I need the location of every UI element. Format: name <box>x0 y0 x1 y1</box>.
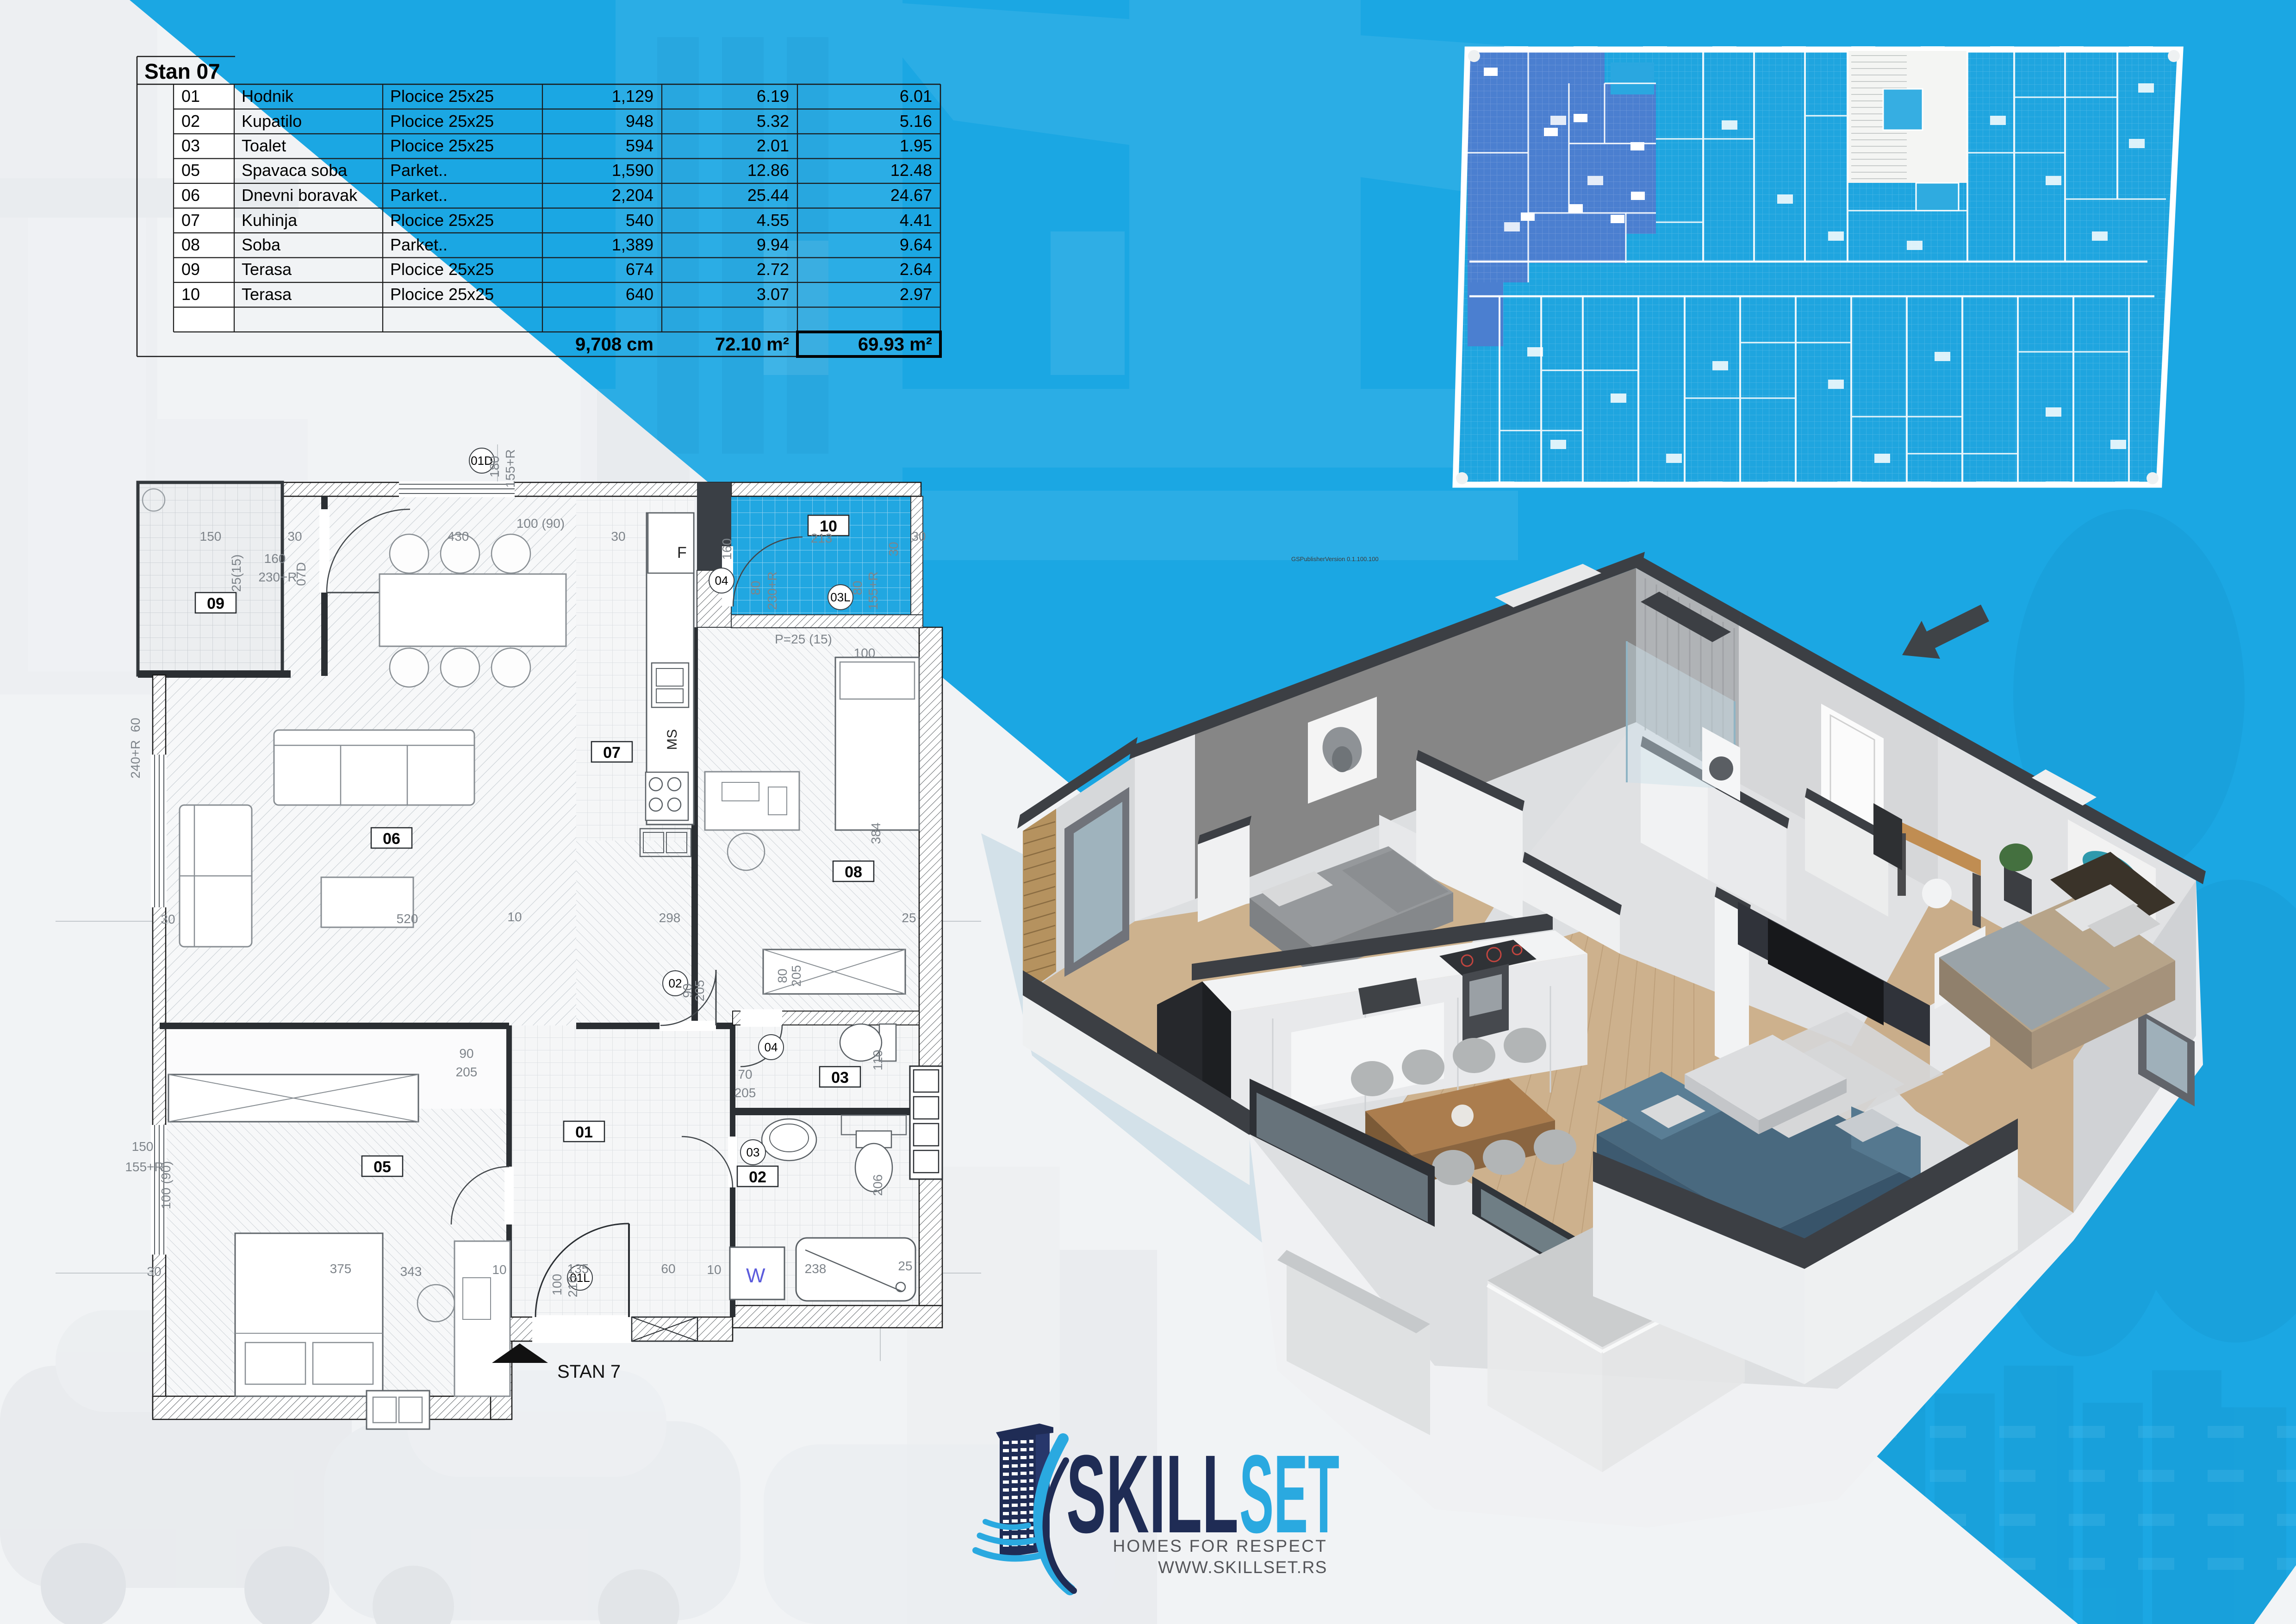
svg-text:Parket..: Parket.. <box>390 161 448 180</box>
svg-text:07: 07 <box>181 211 200 230</box>
svg-text:60: 60 <box>128 718 143 732</box>
svg-text:674: 674 <box>626 260 653 279</box>
svg-text:230+R: 230+R <box>258 570 297 584</box>
svg-text:298: 298 <box>659 911 681 925</box>
svg-text:03: 03 <box>181 136 200 155</box>
svg-text:25(15): 25(15) <box>229 555 243 592</box>
svg-text:160: 160 <box>720 538 734 560</box>
svg-text:Dnevni boravak: Dnevni boravak <box>242 186 358 205</box>
svg-text:100: 100 <box>854 646 876 660</box>
svg-text:Terasa: Terasa <box>242 285 292 304</box>
svg-text:69.93 m²: 69.93 m² <box>858 334 932 355</box>
svg-text:04: 04 <box>765 1040 778 1054</box>
svg-text:5.16: 5.16 <box>900 112 932 131</box>
svg-text:10: 10 <box>507 910 522 924</box>
svg-text:Stan 07: Stan 07 <box>144 59 220 83</box>
svg-text:100: 100 <box>550 1274 564 1296</box>
svg-text:640: 640 <box>626 285 653 304</box>
svg-text:01: 01 <box>575 1124 593 1141</box>
svg-text:P=25 (15): P=25 (15) <box>775 632 832 646</box>
svg-text:04: 04 <box>715 574 728 587</box>
svg-text:80: 80 <box>850 581 865 595</box>
svg-text:80: 80 <box>775 968 790 983</box>
svg-text:430: 430 <box>448 529 469 543</box>
svg-text:100 (90): 100 (90) <box>516 516 565 531</box>
svg-text:06: 06 <box>383 830 400 848</box>
svg-text:10: 10 <box>181 285 200 304</box>
svg-text:Parket..: Parket.. <box>390 235 448 254</box>
svg-text:24.67: 24.67 <box>890 186 932 205</box>
svg-text:Toalet: Toalet <box>242 136 286 155</box>
svg-text:08: 08 <box>845 863 862 881</box>
svg-text:180: 180 <box>487 456 502 478</box>
svg-text:72.10 m²: 72.10 m² <box>715 334 789 355</box>
svg-text:2.64: 2.64 <box>900 260 932 279</box>
svg-text:25: 25 <box>902 911 916 925</box>
svg-text:Soba: Soba <box>242 235 281 254</box>
svg-text:4.55: 4.55 <box>757 211 789 230</box>
svg-text:30: 30 <box>287 529 302 543</box>
svg-text:05: 05 <box>373 1158 391 1176</box>
svg-text:3.07: 3.07 <box>757 285 789 304</box>
svg-text:240+R: 240+R <box>128 740 143 778</box>
svg-text:4.41: 4.41 <box>900 211 932 230</box>
svg-text:Hodnik: Hodnik <box>242 87 294 106</box>
svg-text:25: 25 <box>898 1259 912 1273</box>
svg-text:30: 30 <box>147 1264 161 1279</box>
svg-text:07D: 07D <box>294 562 308 586</box>
svg-text:238: 238 <box>805 1262 827 1276</box>
svg-text:540: 540 <box>626 211 653 230</box>
svg-text:2.72: 2.72 <box>757 260 789 279</box>
svg-text:02: 02 <box>181 112 200 131</box>
svg-text:Plocice 25x25: Plocice 25x25 <box>390 136 494 155</box>
svg-text:1,389: 1,389 <box>612 235 653 254</box>
svg-text:F: F <box>677 544 687 562</box>
svg-text:384: 384 <box>869 823 883 844</box>
svg-text:Spavaca soba: Spavaca soba <box>242 161 348 180</box>
svg-text:30: 30 <box>886 542 901 556</box>
svg-text:9.64: 9.64 <box>900 235 932 254</box>
svg-text:205: 205 <box>734 1086 756 1100</box>
svg-text:100 (90): 100 (90) <box>159 1161 173 1209</box>
svg-text:205: 205 <box>789 965 803 987</box>
svg-text:520: 520 <box>397 912 418 926</box>
svg-text:MS: MS <box>665 729 680 750</box>
svg-text:9,708 cm: 9,708 cm <box>575 334 653 355</box>
svg-text:09: 09 <box>207 595 224 612</box>
svg-text:STAN 7: STAN 7 <box>557 1362 621 1382</box>
svg-text:WWW.SKILLSET.RS: WWW.SKILLSET.RS <box>1158 1558 1327 1577</box>
svg-text:6.01: 6.01 <box>900 87 932 106</box>
svg-text:Kupatilo: Kupatilo <box>242 112 302 131</box>
svg-text:05: 05 <box>181 161 200 180</box>
svg-text:5.32: 5.32 <box>757 112 789 131</box>
svg-text:160: 160 <box>264 551 286 566</box>
svg-text:Kuhinja: Kuhinja <box>242 211 298 230</box>
svg-text:135: 135 <box>567 1262 589 1276</box>
svg-text:07: 07 <box>603 744 621 762</box>
svg-text:60: 60 <box>661 1262 675 1276</box>
svg-text:1,129: 1,129 <box>612 87 653 106</box>
svg-text:948: 948 <box>626 112 653 131</box>
svg-text:Plocice 25x25: Plocice 25x25 <box>390 211 494 230</box>
svg-text:210: 210 <box>566 1276 580 1298</box>
svg-text:GSPublisherVersion 0.1.100.100: GSPublisherVersion 0.1.100.100 <box>1291 556 1379 562</box>
svg-text:30: 30 <box>911 529 926 543</box>
svg-text:155+R: 155+R <box>866 571 880 610</box>
svg-text:9.94: 9.94 <box>757 235 789 254</box>
svg-text:Parket..: Parket.. <box>390 186 448 205</box>
svg-text:25.44: 25.44 <box>747 186 789 205</box>
svg-text:213: 213 <box>811 531 833 545</box>
svg-text:03: 03 <box>831 1069 849 1087</box>
svg-text:150: 150 <box>200 529 222 543</box>
svg-text:1,590: 1,590 <box>612 161 653 180</box>
svg-text:12.86: 12.86 <box>747 161 789 180</box>
svg-text:01: 01 <box>181 87 200 106</box>
svg-text:90: 90 <box>459 1046 473 1061</box>
svg-text:06: 06 <box>181 186 200 205</box>
svg-text:02: 02 <box>749 1168 766 1186</box>
svg-text:205: 205 <box>456 1065 478 1079</box>
svg-text:110: 110 <box>871 1050 885 1071</box>
svg-text:10: 10 <box>707 1262 721 1277</box>
svg-text:08: 08 <box>181 235 200 254</box>
svg-text:12.48: 12.48 <box>890 161 932 180</box>
svg-text:HOMES FOR RESPECT: HOMES FOR RESPECT <box>1113 1537 1328 1555</box>
svg-text:6.19: 6.19 <box>757 87 789 106</box>
svg-text:30: 30 <box>161 912 175 926</box>
svg-text:343: 343 <box>400 1264 422 1279</box>
svg-text:30: 30 <box>611 529 625 543</box>
svg-text:230+R: 230+R <box>765 571 779 610</box>
svg-text:03L: 03L <box>830 590 850 604</box>
svg-text:80: 80 <box>748 581 763 595</box>
svg-text:155+R: 155+R <box>503 449 517 487</box>
svg-text:205: 205 <box>692 980 707 1002</box>
svg-text:2.01: 2.01 <box>757 136 789 155</box>
svg-text:Terasa: Terasa <box>242 260 292 279</box>
svg-text:09: 09 <box>181 260 200 279</box>
svg-text:155+R: 155+R <box>125 1160 163 1174</box>
svg-text:1.95: 1.95 <box>900 136 932 155</box>
svg-text:594: 594 <box>626 136 653 155</box>
svg-text:Plocice 25x25: Plocice 25x25 <box>390 260 494 279</box>
svg-text:10: 10 <box>492 1262 506 1277</box>
svg-text:150: 150 <box>132 1139 154 1154</box>
svg-text:03: 03 <box>747 1145 760 1159</box>
svg-text:Plocice 25x25: Plocice 25x25 <box>390 112 494 131</box>
svg-text:70: 70 <box>738 1067 752 1081</box>
svg-text:Plocice 25x25: Plocice 25x25 <box>390 87 494 106</box>
svg-text:2,204: 2,204 <box>612 186 653 205</box>
svg-text:W: W <box>746 1264 765 1287</box>
svg-text:206: 206 <box>871 1174 885 1196</box>
svg-text:2.97: 2.97 <box>900 285 932 304</box>
svg-text:375: 375 <box>330 1262 352 1276</box>
svg-text:Plocice 25x25: Plocice 25x25 <box>390 285 494 304</box>
